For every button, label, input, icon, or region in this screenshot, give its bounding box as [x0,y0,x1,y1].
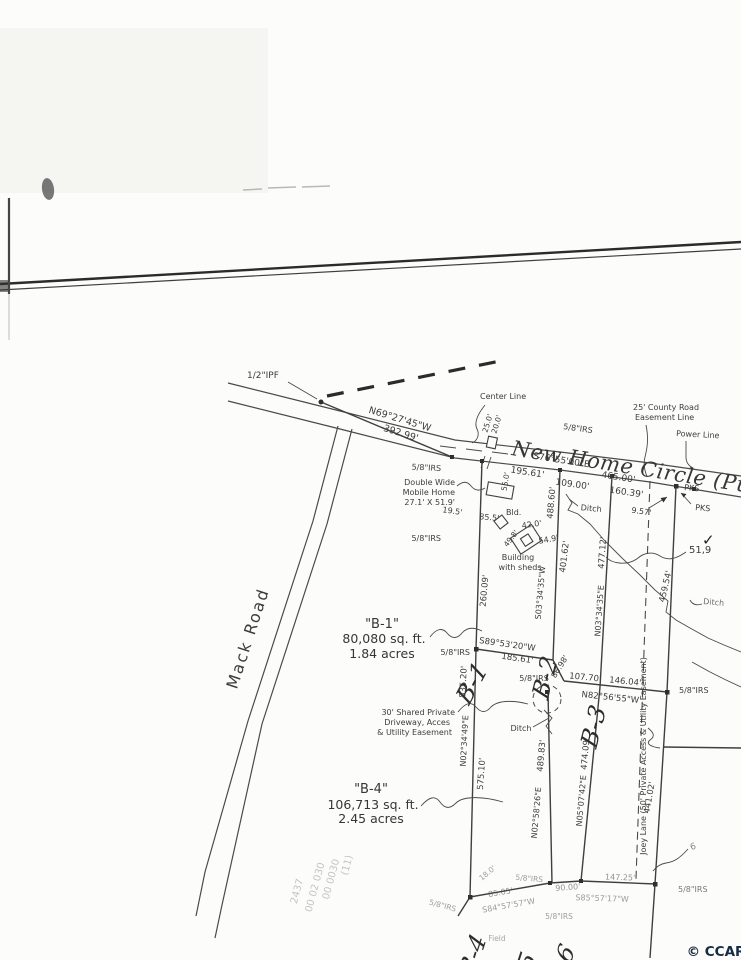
squiggle-connector [648,728,660,748]
dist-18-0: 18.0' [477,864,497,883]
mobile-home-label-1: Double Wide [404,478,455,487]
east-side-line [663,747,741,748]
irs-label-southeast: 5/8"IRS [678,885,708,894]
corner-point [653,882,658,887]
irs-label-b1-south: 5/8"IRS [440,648,470,657]
corner-point [665,690,670,695]
irs-label-circle: 5/8"IRS [519,674,549,683]
bearing-s85: S85°57'17"W [575,893,629,904]
bearing-n02-34: N02°34'49"E [459,715,471,767]
dist-19-5: 19.5' [442,505,463,517]
lot-b6-east-line [650,692,667,958]
ditch-leader-east [690,600,702,605]
mack-road-west-edge [196,426,338,916]
dist-401-62: 401.62' [558,540,572,573]
faint-tax-note-4: 2437 [289,878,306,905]
dimension-tick [487,457,491,469]
bearing-s84: S84°57'57"W [481,896,535,914]
dist-160-39: 160.39' [609,486,644,501]
paper-fold-line-2 [0,249,741,290]
power-line-label: Power Line [676,429,720,440]
driveway-label-1: 30' Shared Private [381,708,455,717]
bearing-n05: N05°07'42"E [575,775,588,827]
lot-b4-area: 106,713 sq. ft. [327,797,418,812]
dist-147-25: 147.25' [605,872,635,882]
building-sheds-label-1: Building [502,553,534,562]
road-centerline-dash [440,446,456,448]
joey-lane-easement-label: Joey Lane (50' Private Access & Utility … [639,657,648,856]
lot-b4-acres: 2.45 acres [338,811,403,826]
driveway-label-2: Driveway, Acces [384,718,450,727]
dist-474-09: 474.09' [580,737,593,770]
corner-point [468,895,473,900]
ditch-label-b4: Ditch [511,724,532,733]
dist-575-10: 575.10' [476,758,488,791]
ditch-line-main [566,494,741,652]
county-easement-label-1: 25' County Road [633,403,699,412]
building-inner-shed [520,534,532,546]
ccar-watermark: © CCAR [687,944,741,960]
driveway-label-3: & Utility Easement [377,728,452,737]
scan-artifacts [0,28,741,340]
dist-835-20: 835.20' [458,666,470,699]
dist-90-00: 90.00' [555,882,581,893]
ditch-line-east [692,662,741,687]
ipf-leader [288,382,317,399]
b4-area-leader [421,798,503,808]
bearing-s89: S89°53'20"W [478,636,536,654]
b1-area-leader [430,628,482,637]
road-centerline-dash [466,449,482,451]
road-utility-box [486,436,497,449]
irs-label-n82-east: 5/8"IRS [679,686,709,695]
dist-185-61: 185.61' [501,652,534,666]
note6-leader [653,849,688,871]
dist-489-83: 489.83' [536,739,549,772]
bold-dashed-tie-line [327,361,500,396]
lot-b1-script: B-1 [451,657,494,711]
ipf-label: 1/2"IPF [247,371,279,381]
corner-point [474,647,479,652]
mobile-home-label-2: Mobile Home [403,488,455,497]
dist-55-0: 55.0' [499,472,511,492]
lot-b1-west-line [476,461,482,649]
dist-9-57: 9.57' [631,506,652,518]
lot-b4-title: "B-4" [354,782,388,797]
pks-label-2: PKS [695,503,711,513]
dist-488-60: 488.60' [546,486,559,519]
irs-label-b1-west: 5/8"IRS [411,534,441,543]
county-easement-label-2: Easement Line [635,413,694,422]
bearing-s03: S03°34'35"W [534,566,548,620]
faint-dash [243,189,262,190]
corner-point [548,881,552,885]
building-sheds-label-2: with sheds [499,563,542,572]
lot-b1-title: "B-1" [365,617,399,632]
lot-b1-acres: 1.84 acres [349,646,414,661]
arrowhead [661,497,668,503]
arrowhead [681,493,687,498]
dist-109-00: 109.00' [555,478,590,493]
irs-label-faint-bottom: 5/8"IRS [545,912,573,921]
road-centerline-dash [492,452,508,454]
dist-85-05: 85.05' [487,886,513,899]
pen-checkmark: ✓ [702,531,715,549]
pks-label-1: PKS [684,483,700,493]
faint-dash [302,186,330,187]
bearing-n02-58: N02°58'26"E [530,787,543,839]
lot-b1-area: 80,080 sq. ft. [342,631,425,646]
dist-85-5: 85.5' [479,512,500,523]
plat-drawing: 1/2"IPF N69°27'45"W 392.99' Center Line … [0,0,741,960]
irs-label-road-top: 5/8"IRS [563,422,594,435]
scan-shading [0,28,268,193]
ditch-label-top: Ditch [580,503,602,514]
irs-label-faint-mid: 5/8"IRS [515,873,544,884]
faint-dash [268,187,296,188]
dist-49-8: 49.8' [502,528,521,548]
note-6-label: 6 [689,842,697,853]
faint-tax-note-1: (11) [340,854,356,877]
corner-point [558,468,562,472]
field-label: Field [488,934,506,943]
lot-b5-script: B-5 [504,948,542,960]
dist-260-09: 260.09' [479,574,492,607]
paper-fold-line [0,242,741,284]
dist-54-9: 54.9' [538,533,559,545]
scanned-survey-plat: 1/2"IPF N69°27'45"W 392.99' Center Line … [0,0,741,960]
lot-b4-b5-line [548,691,552,883]
ditch-leader-top [569,499,578,506]
dist-42-0: 42.0' [521,519,542,531]
ditch-label-east: Ditch [703,597,725,608]
road-name-mack: Mack Road [223,585,273,691]
irs-label-faint-left: 5/8"IRS [428,898,457,914]
irs-label-road-left: 5/8"IRS [411,462,441,473]
lot-b6-script: B-6 [541,940,581,960]
lot-b4-script: B-4 [454,930,492,960]
bld-label: Bld. [506,508,521,517]
corner-point [450,455,454,459]
corner-point [480,459,484,463]
southwest-tail-line [458,897,470,916]
center-line-label: Center Line [480,392,526,401]
ipf-point [319,400,324,405]
